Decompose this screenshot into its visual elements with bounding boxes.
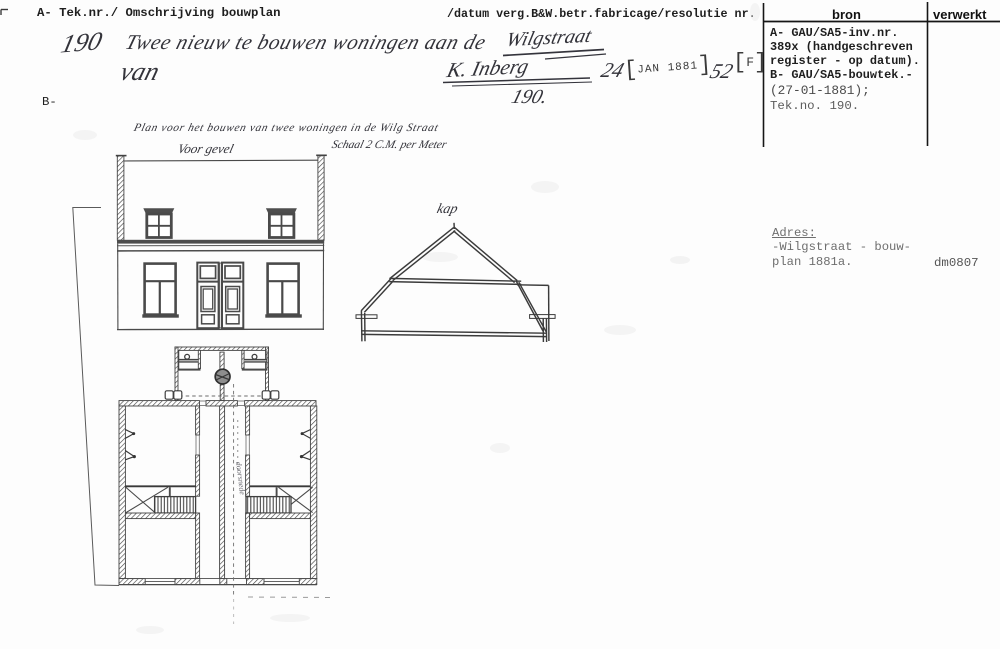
svg-text:doorsnede: doorsnede <box>234 461 247 496</box>
